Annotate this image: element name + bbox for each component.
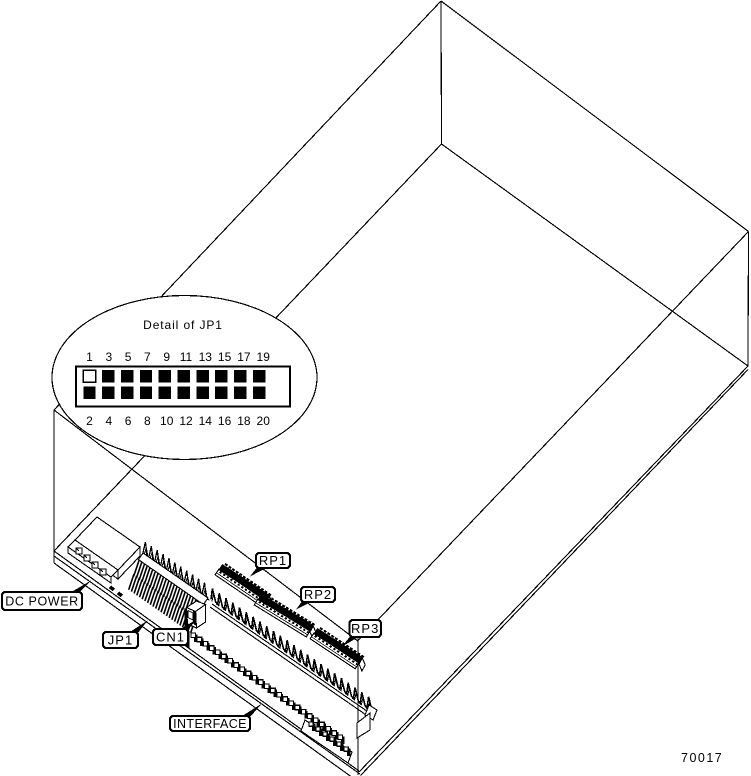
svg-text:13: 13 xyxy=(199,350,213,364)
svg-text:7: 7 xyxy=(144,350,151,364)
svg-text:10: 10 xyxy=(160,414,174,428)
svg-text:RP1: RP1 xyxy=(259,553,287,568)
svg-text:6: 6 xyxy=(125,414,132,428)
svg-text:CN1: CN1 xyxy=(156,630,185,645)
svg-text:18: 18 xyxy=(237,414,251,428)
svg-text:INTERFACE: INTERFACE xyxy=(173,717,247,731)
svg-text:JP1: JP1 xyxy=(108,633,133,648)
svg-text:5: 5 xyxy=(125,350,132,364)
svg-text:17: 17 xyxy=(237,350,251,364)
svg-text:4: 4 xyxy=(105,414,112,428)
svg-text:3: 3 xyxy=(105,350,112,364)
svg-text:16: 16 xyxy=(218,414,232,428)
svg-text:9: 9 xyxy=(163,350,170,364)
svg-text:DC POWER: DC POWER xyxy=(5,595,79,609)
svg-text:12: 12 xyxy=(179,414,193,428)
svg-text:14: 14 xyxy=(199,414,213,428)
svg-text:8: 8 xyxy=(144,414,151,428)
svg-text:70017: 70017 xyxy=(681,751,723,765)
svg-text:RP2: RP2 xyxy=(304,587,332,602)
svg-text:2: 2 xyxy=(86,414,93,428)
svg-text:20: 20 xyxy=(257,414,271,428)
svg-text:1: 1 xyxy=(86,350,93,364)
svg-text:RP3: RP3 xyxy=(351,621,379,636)
svg-text:Detail of JP1: Detail of JP1 xyxy=(143,318,223,332)
svg-text:15: 15 xyxy=(218,350,232,364)
svg-text:19: 19 xyxy=(257,350,271,364)
svg-text:11: 11 xyxy=(180,350,193,364)
